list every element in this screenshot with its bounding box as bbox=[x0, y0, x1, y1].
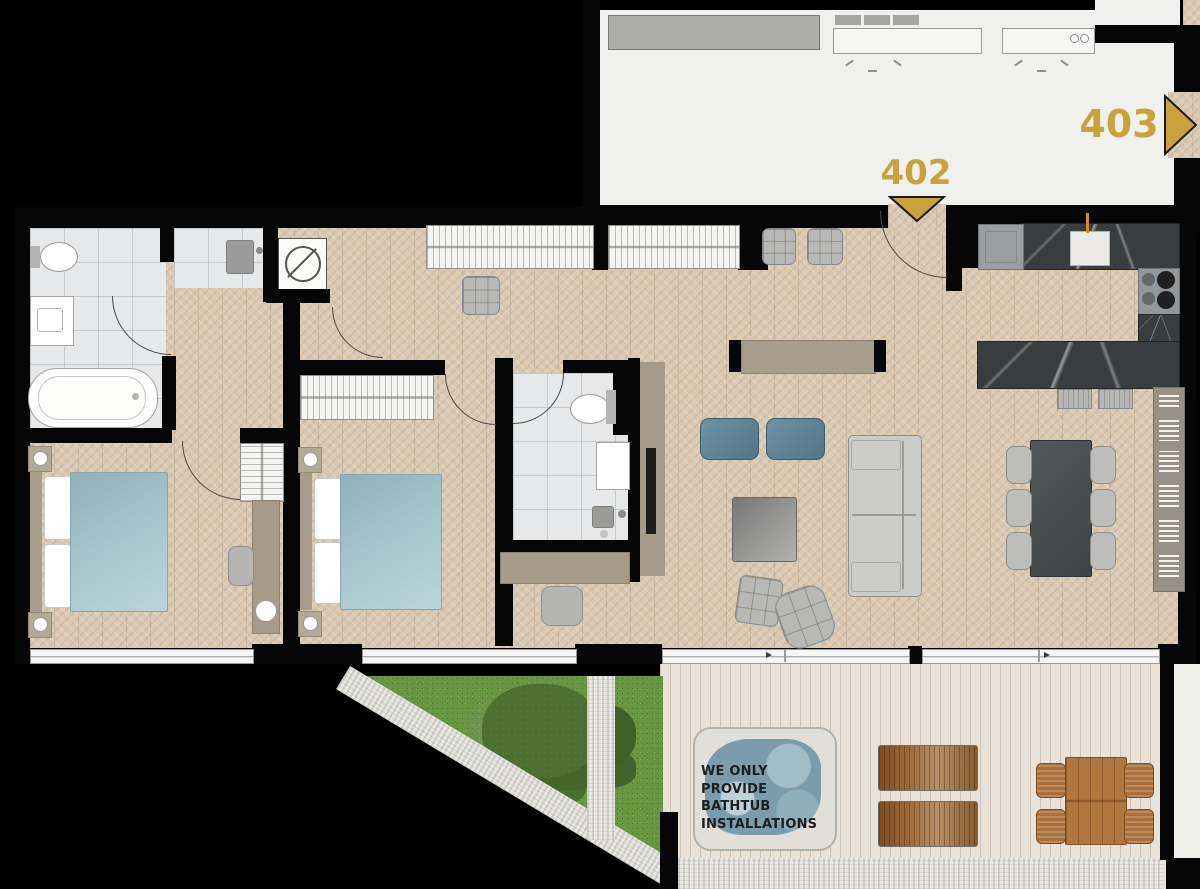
bedside-lamp bbox=[303, 616, 318, 631]
unit-402-entrance-arrow-icon[interactable] bbox=[888, 195, 946, 223]
terrace-divider-wall bbox=[1160, 648, 1174, 860]
bar-stool bbox=[1098, 389, 1133, 409]
shower-head bbox=[226, 240, 254, 274]
wall bbox=[575, 644, 662, 664]
corridor-cabinet bbox=[833, 28, 982, 54]
bedroom-1-closet bbox=[240, 443, 284, 502]
blue-ottoman bbox=[766, 418, 825, 460]
lounge-chair bbox=[878, 801, 978, 847]
bedroom-2-wardrobe bbox=[300, 375, 434, 420]
deck-edge bbox=[660, 812, 678, 889]
wall bbox=[908, 646, 922, 664]
wall bbox=[283, 360, 445, 375]
neighbor-terrace bbox=[1174, 664, 1200, 858]
burner bbox=[1157, 271, 1175, 289]
slider-divider bbox=[1038, 649, 1040, 662]
bedroom-1-window bbox=[30, 649, 254, 664]
bedside-lamp bbox=[33, 451, 48, 466]
cabinet-knob bbox=[1070, 34, 1079, 43]
toilet bbox=[570, 394, 610, 424]
nook-desk bbox=[500, 552, 630, 584]
dining-chair bbox=[1090, 532, 1116, 570]
unit-402-label[interactable]: 402 bbox=[870, 156, 962, 190]
tv bbox=[646, 448, 656, 534]
outdoor-chair bbox=[1124, 763, 1154, 798]
toilet bbox=[40, 242, 78, 272]
sideboard bbox=[741, 340, 876, 374]
sofa-cushion bbox=[851, 562, 901, 592]
dining-chair bbox=[1090, 489, 1116, 527]
bed-pillow bbox=[314, 478, 342, 540]
cabinet-knob bbox=[1080, 34, 1089, 43]
wall bbox=[283, 300, 300, 646]
bedroom-2-window bbox=[362, 649, 577, 664]
console-cap bbox=[874, 340, 886, 372]
sofa-cushion bbox=[851, 440, 901, 470]
faucet bbox=[1086, 213, 1089, 233]
unit-403-entrance-arrow-icon[interactable] bbox=[1163, 94, 1199, 156]
corridor-floor-upper bbox=[1095, 0, 1180, 25]
wall bbox=[160, 228, 174, 262]
wall bbox=[500, 540, 640, 552]
dining-chair bbox=[1006, 532, 1032, 570]
bed-pillow bbox=[44, 544, 72, 608]
wall bbox=[583, 0, 600, 208]
garden-path bbox=[587, 676, 615, 840]
dining-table bbox=[1030, 440, 1092, 577]
wall bbox=[1166, 858, 1200, 889]
books bbox=[1159, 392, 1179, 587]
wall bbox=[495, 358, 513, 646]
bed-pillow bbox=[44, 476, 72, 540]
disclaimer-line-3: INSTALLATIONS bbox=[701, 816, 833, 834]
bed-headboard bbox=[300, 472, 312, 610]
door-swing-mark bbox=[868, 70, 877, 72]
wall bbox=[592, 220, 608, 270]
dining-chair bbox=[1006, 489, 1032, 527]
wall bbox=[252, 644, 362, 664]
shower-head bbox=[592, 506, 614, 528]
dining-chair bbox=[1090, 446, 1116, 484]
dining-chair bbox=[1006, 446, 1032, 484]
bathtub-disclaimer: WE ONLY PROVIDE BATHTUB INSTALLATIONS bbox=[701, 763, 833, 833]
corridor-cabinet-box bbox=[893, 15, 919, 25]
bed-pillow bbox=[314, 542, 342, 604]
entry-pouf bbox=[807, 228, 843, 265]
desk-stool bbox=[255, 600, 277, 622]
burner bbox=[1142, 273, 1155, 286]
slider-divider bbox=[784, 649, 786, 662]
lounge-chair bbox=[878, 745, 978, 791]
toilet-tank bbox=[606, 390, 616, 424]
washing-machine-icon bbox=[285, 246, 321, 282]
wall bbox=[960, 205, 1180, 225]
nook-chair bbox=[541, 586, 583, 626]
bedroom-1-pouf bbox=[228, 546, 254, 586]
bookshelf bbox=[1153, 387, 1185, 592]
bathtub-inner bbox=[38, 376, 146, 420]
shower-knob bbox=[256, 247, 263, 254]
gravel-strip bbox=[678, 858, 1162, 889]
outdoor-chair bbox=[1036, 809, 1066, 844]
sofa-cushion-seam bbox=[852, 514, 916, 516]
wall bbox=[1095, 25, 1183, 43]
bed-headboard bbox=[30, 470, 42, 612]
sink-basin bbox=[985, 231, 1017, 263]
outdoor-chair bbox=[1124, 809, 1154, 844]
bed-duvet bbox=[70, 472, 168, 612]
coffee-table bbox=[732, 497, 797, 562]
corridor-bench bbox=[608, 15, 820, 50]
wall bbox=[162, 356, 176, 430]
slide-arrow-icon bbox=[1044, 652, 1050, 658]
bedside-lamp bbox=[33, 617, 48, 632]
sink-basin bbox=[37, 308, 63, 332]
console-cap bbox=[729, 340, 741, 372]
disclaimer-line-2: BATHTUB bbox=[701, 798, 833, 816]
sliding-door bbox=[922, 649, 1160, 664]
coffee-machine bbox=[1070, 231, 1110, 266]
wall bbox=[15, 644, 30, 664]
kitchen-island bbox=[977, 341, 1180, 389]
door-swing-mark bbox=[1037, 70, 1046, 72]
corridor-cabinet-box bbox=[835, 15, 861, 25]
floor-plan: WE ONLY PROVIDE BATHTUB INSTALLATIONS 40… bbox=[0, 0, 1200, 889]
vanity-sink bbox=[596, 442, 630, 490]
burner bbox=[1157, 291, 1175, 309]
hall-wardrobe bbox=[426, 225, 594, 269]
kitchen-counter-side bbox=[1138, 314, 1180, 343]
outdoor-table bbox=[1065, 757, 1127, 845]
hall-pouf bbox=[462, 276, 500, 315]
outdoor-chair bbox=[1036, 763, 1066, 798]
wall bbox=[15, 428, 172, 443]
bathtub-drain bbox=[132, 393, 139, 400]
unit-403-label[interactable]: 403 bbox=[1076, 105, 1162, 143]
shower-knob bbox=[618, 510, 626, 518]
toilet-tank bbox=[30, 246, 40, 268]
bedside-lamp bbox=[303, 452, 318, 467]
slide-arrow-icon bbox=[766, 652, 772, 658]
hall-wardrobe bbox=[608, 225, 740, 269]
disclaimer-line-1: WE ONLY PROVIDE bbox=[701, 763, 833, 798]
wall bbox=[960, 220, 978, 268]
blue-ottoman bbox=[700, 418, 759, 460]
corridor-cabinet-box bbox=[864, 15, 890, 25]
entry-pouf bbox=[762, 228, 796, 265]
bed-duvet bbox=[340, 474, 442, 610]
shower-drain bbox=[600, 530, 608, 538]
sliding-door bbox=[662, 649, 910, 664]
bar-stool bbox=[1057, 389, 1092, 409]
burner bbox=[1142, 292, 1155, 305]
